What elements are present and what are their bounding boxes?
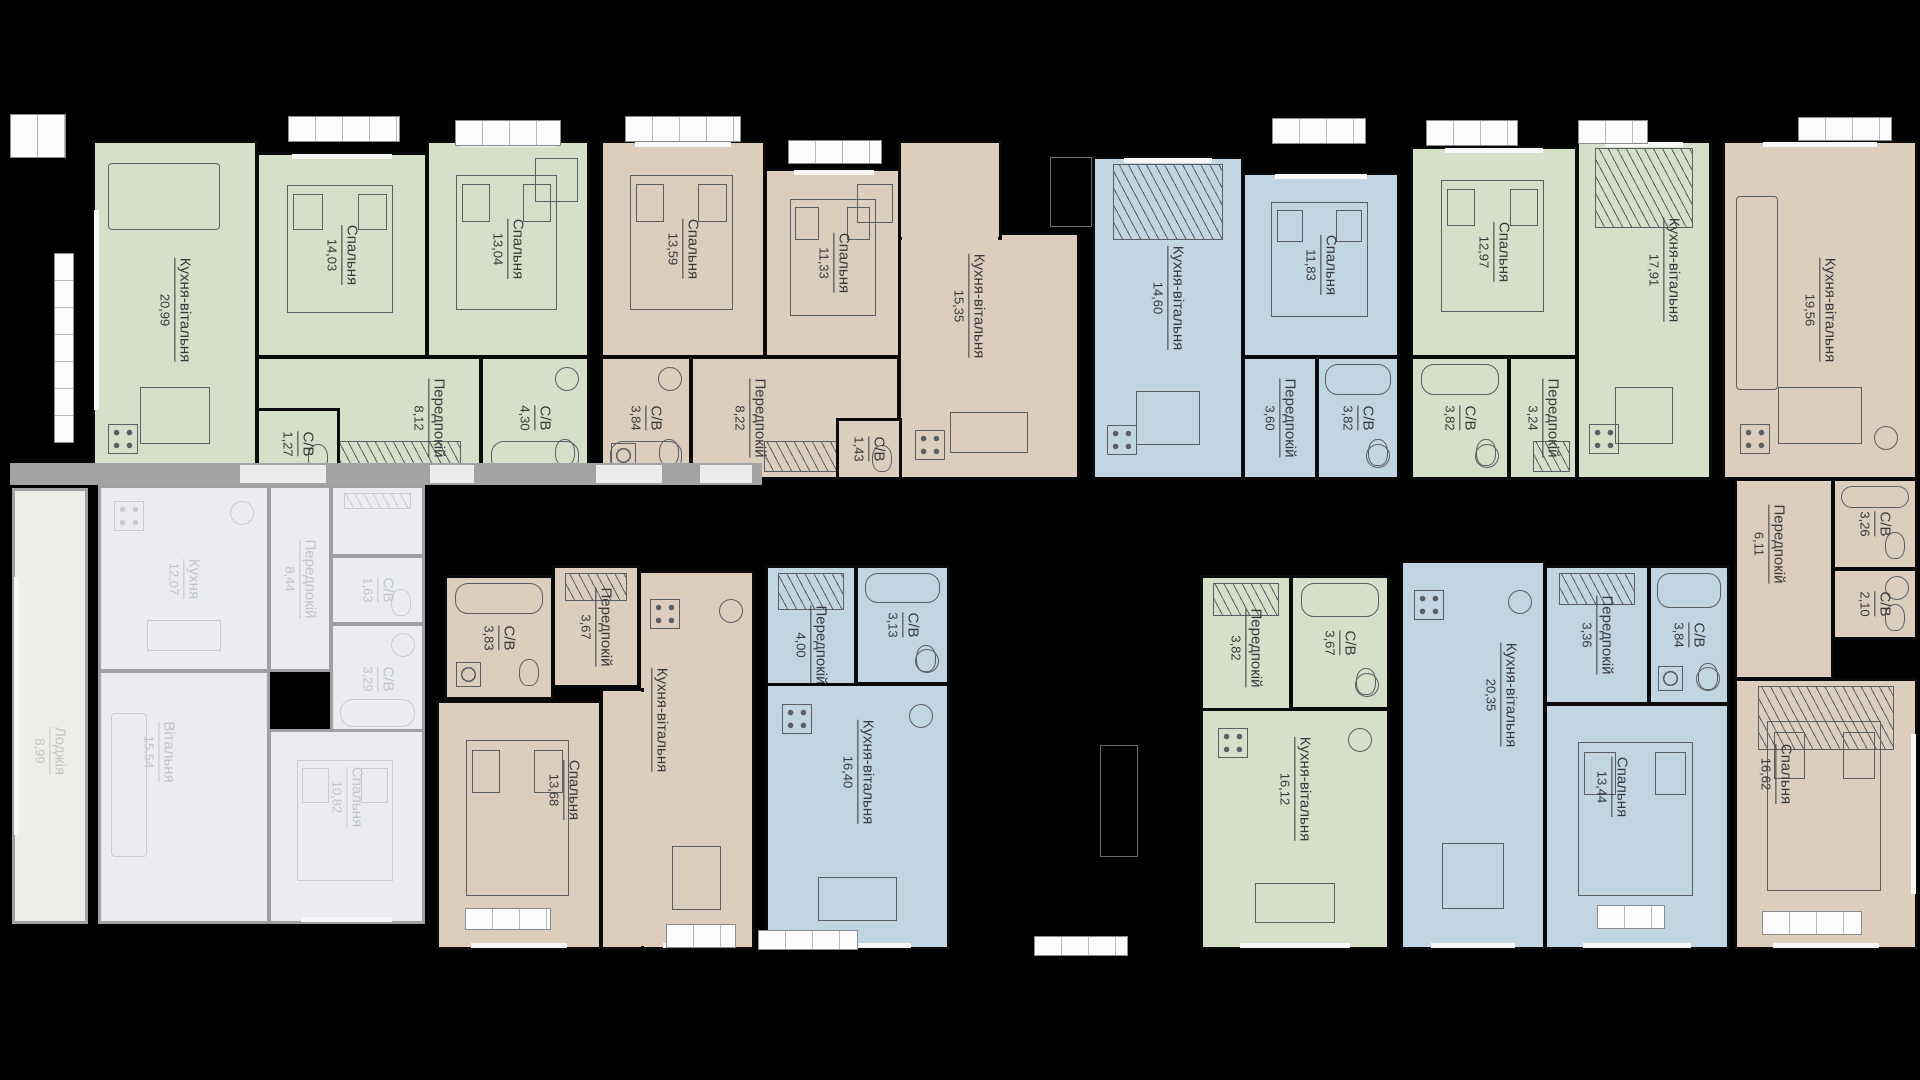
- room-label: С/В1,63: [360, 577, 395, 602]
- bed-symbol: [630, 175, 732, 311]
- sink-symbol: [909, 704, 933, 728]
- room-label: Передпокій8,22: [733, 379, 768, 458]
- apartment-top-4-bathroom[interactable]: С/В3,82: [1410, 356, 1510, 480]
- wc-symbol: [1885, 532, 1905, 559]
- room-name: Передпокій: [1280, 379, 1298, 458]
- room-area: 3,24: [1526, 405, 1541, 430]
- room-area: 3,67: [579, 614, 594, 639]
- window: [292, 154, 392, 159]
- wardrobe-symbol: [344, 493, 412, 509]
- sofa-symbol: [108, 163, 220, 230]
- room-name: Лоджія: [50, 727, 68, 775]
- bath-symbol: [1657, 573, 1721, 608]
- balcony-railing: [788, 140, 882, 164]
- room-label: С/В3,13: [885, 612, 920, 637]
- apartment-bottom-1-loggia: Лоджія8,99: [12, 488, 88, 924]
- room-area: 15,35: [952, 290, 967, 323]
- room-name: Кухня-вітальня: [1501, 643, 1519, 747]
- apartment-bottom-5-bathroom[interactable]: С/В3,84: [1648, 565, 1730, 705]
- wc-symbol: [1698, 663, 1718, 690]
- stove-symbol: [1218, 728, 1248, 758]
- room-name: С/В: [646, 405, 664, 430]
- window: [1124, 158, 1212, 163]
- stove-symbol: [114, 501, 144, 531]
- apartment-top-2-kitchen-living[interactable]: Кухня-вітальня15,35: [898, 232, 1080, 480]
- apartment-top-4-kitchen-living[interactable]: Кухня-вітальня17,91: [1576, 140, 1712, 480]
- apartment-top-3-bathroom[interactable]: С/В3,82: [1316, 356, 1400, 480]
- sink-symbol: [1348, 728, 1372, 752]
- table-symbol: [147, 620, 220, 651]
- wc-symbol: [1368, 439, 1388, 466]
- table-symbol: [672, 846, 721, 910]
- sink-symbol: [1874, 426, 1898, 450]
- bath-symbol: [1301, 583, 1380, 617]
- apartment-bottom-2-kitchen-living-patch: [633, 692, 647, 946]
- room-area: 3,82: [1341, 405, 1356, 430]
- ghost-fragment: [1050, 157, 1092, 227]
- washer-symbol: [1658, 666, 1683, 691]
- room-name: Передпокій: [1769, 505, 1787, 584]
- window: [1240, 943, 1350, 948]
- wardrobe-symbol: [1213, 583, 1278, 616]
- room-label: Кухня-вітальня16,12: [1278, 737, 1313, 841]
- balcony-railing: [288, 116, 400, 142]
- apartment-bottom-5-kitchen-living[interactable]: Кухня-вітальня20,35: [1400, 560, 1546, 950]
- apartment-top-5-hallway[interactable]: Передпокій6,11: [1734, 478, 1834, 680]
- apartment-bottom-1-living-room: Вітальня15,54: [98, 670, 270, 924]
- apartment-top-5-kitchen-living[interactable]: Кухня-вітальня19,56: [1722, 140, 1918, 480]
- room-name: Кухня-вітальня: [1295, 737, 1313, 841]
- room-label: Передпокій3,36: [1580, 596, 1615, 675]
- window: [471, 943, 567, 948]
- desk-symbol: [535, 158, 578, 203]
- balcony-railing: [10, 114, 66, 158]
- room-name: С/В: [535, 405, 553, 430]
- room-label: Кухня-вітальня20,99: [158, 258, 193, 362]
- wc-symbol: [1356, 668, 1376, 695]
- room-area: 3,84: [1672, 622, 1687, 647]
- room-area: 3,67: [1323, 630, 1338, 655]
- room-label: Кухня-вітальня15,35: [952, 254, 987, 358]
- apartment-top-2-bathroom-1[interactable]: С/В3,84: [600, 356, 692, 480]
- apartment-bottom-1-wardrobe-nook: [330, 485, 425, 557]
- wc-symbol: [391, 589, 411, 616]
- apartment-top-3-bedroom[interactable]: Спальня11,83: [1242, 172, 1400, 358]
- apartment-top-1-bedroom-1[interactable]: Спальня14,03: [256, 152, 428, 358]
- sofaV-symbol: [111, 713, 148, 857]
- room-area: 8,99: [33, 738, 48, 763]
- apartment-bottom-3-kitchen-living[interactable]: Кухня-вітальня16,40: [765, 683, 950, 950]
- bath-symbol: [865, 573, 940, 603]
- room-area: 3,82: [1229, 635, 1244, 660]
- room-label: Передпокій6,11: [1752, 505, 1787, 584]
- room-area: 3,84: [629, 405, 644, 430]
- bath-symbol: [1421, 364, 1500, 395]
- room-name: Кухня: [184, 558, 202, 598]
- room-area: 8,22: [733, 405, 748, 430]
- room-label: Кухня-вітальня16,40: [840, 719, 875, 823]
- wc-symbol: [872, 445, 892, 472]
- room-area: 4,00: [794, 632, 809, 657]
- sidewalk-tick: [596, 465, 662, 483]
- apartment-top-2-bathroom-2[interactable]: С/В1,43: [836, 418, 902, 480]
- wc-symbol: [519, 659, 539, 686]
- washer-symbol: [456, 662, 481, 687]
- apartment-bottom-1-kitchen: Кухня12,07: [98, 485, 270, 672]
- wc-symbol: [916, 645, 936, 672]
- apartment-top-4-bedroom[interactable]: Спальня12,97: [1410, 146, 1578, 358]
- balcony-railing: [758, 930, 858, 950]
- room-name: С/В: [1689, 622, 1707, 647]
- apartment-bottom-5-hallway[interactable]: Передпокій3,36: [1544, 565, 1650, 705]
- room-label: С/В3,67: [1323, 630, 1358, 655]
- room-label: Кухня-вітальня14,60: [1151, 246, 1186, 350]
- window: [1763, 142, 1877, 147]
- bath-symbol: [455, 583, 542, 614]
- room-area: 16,12: [1278, 773, 1293, 806]
- room-area: 1,27: [281, 431, 296, 456]
- room-label: С/В3,83: [482, 625, 517, 650]
- balcony-railing: [465, 908, 551, 930]
- stove-symbol: [1589, 424, 1619, 454]
- table-symbol: [140, 387, 210, 444]
- stove-symbol: [782, 704, 812, 734]
- window: [1583, 943, 1691, 948]
- apartment-top-2-kitchen-living-part-0[interactable]: [898, 140, 1002, 240]
- room-area: 16,40: [840, 755, 855, 788]
- room-area: 17,91: [1647, 254, 1662, 287]
- sink-symbol: [230, 501, 254, 525]
- table-symbol: [950, 412, 1027, 453]
- room-label: С/В4,30: [518, 405, 553, 430]
- room-area: 6,11: [1752, 532, 1767, 556]
- balcony-railing: [1272, 118, 1366, 144]
- room-name: Кухня-вітальня: [175, 258, 193, 362]
- window: [1911, 734, 1916, 894]
- bed-symbol: [1767, 721, 1881, 891]
- balcony-railing: [1426, 120, 1518, 146]
- room-area: 20,35: [1484, 679, 1499, 712]
- room-name: С/В: [1340, 630, 1358, 655]
- room-label: Передпокій3,82: [1229, 608, 1264, 687]
- balcony-railing: [1597, 905, 1665, 929]
- sidewalk-tick: [240, 465, 326, 483]
- apartment-bottom-4-bathroom[interactable]: С/В3,67: [1290, 575, 1390, 710]
- room-area: 3,29: [360, 666, 375, 691]
- stove-symbol: [915, 430, 945, 460]
- room-area: 12,07: [167, 562, 182, 595]
- bed-symbol: [1441, 180, 1545, 312]
- balcony-railing: [1798, 117, 1892, 141]
- apartment-top-3-hallway[interactable]: Передпокій3,60: [1242, 356, 1318, 480]
- balcony-railing: [625, 116, 741, 142]
- table-symbol: [818, 877, 897, 921]
- wardrobe-symbol: [1559, 573, 1635, 605]
- room-label: С/В3,82: [1443, 405, 1478, 430]
- room-label: Кухня-вітальня20,35: [1484, 643, 1519, 747]
- room-area: 1,63: [360, 577, 375, 602]
- apartment-top-1-bathroom-2[interactable]: С/В4,30: [480, 356, 590, 480]
- bath-symbol: [1325, 364, 1391, 395]
- wardrobe-symbol: [1595, 148, 1694, 228]
- window: [14, 577, 19, 835]
- bed-symbol: [1578, 742, 1693, 896]
- ghost-fragment: [1100, 745, 1138, 857]
- sofaV-symbol: [1736, 196, 1778, 390]
- room-label: С/В3,82: [1341, 405, 1376, 430]
- room-label: Передпокій3,60: [1263, 379, 1298, 458]
- room-area: 14,60: [1151, 282, 1166, 315]
- room-name: Кухня-вітальня: [1168, 246, 1186, 350]
- stove-symbol: [108, 424, 138, 454]
- room-area: 2,10: [1858, 591, 1873, 616]
- room-name: С/В: [902, 612, 920, 637]
- apartment-top-2-bedroom-2[interactable]: Спальня11,33: [764, 168, 904, 358]
- sidewalk-tick: [700, 465, 752, 483]
- room-area: 3,13: [885, 612, 900, 637]
- floor-plan: Кухня-вітальня20,99Спальня14,03Спальня13…: [0, 0, 1920, 1080]
- room-area: 3,60: [1263, 405, 1278, 430]
- room-area: 1,43: [852, 436, 867, 461]
- room-label: Передпокій8,44: [283, 539, 318, 618]
- room-label: Кухня12,07: [167, 558, 202, 598]
- room-area: 3,82: [1443, 405, 1458, 430]
- sink-symbol: [391, 633, 415, 657]
- room-name: С/В: [377, 666, 395, 691]
- apartment-top-2-kitchen-living-patch: [902, 230, 998, 244]
- apartment-bottom-1-hallway: Передпокій8,44: [268, 485, 332, 672]
- room-area: 3,26: [1858, 511, 1873, 536]
- wardrobe-symbol: [778, 573, 843, 610]
- wc-symbol: [1476, 439, 1496, 466]
- room-name: Кухня-вітальня: [1664, 218, 1682, 322]
- apartment-top-5-bedroom[interactable]: Спальня16,62: [1734, 678, 1918, 950]
- sink-symbol: [555, 367, 579, 391]
- apartment-bottom-1-bathroom-1: С/В1,63: [330, 555, 425, 625]
- room-area: 4,30: [518, 405, 533, 430]
- room-area: 19,56: [1803, 294, 1818, 327]
- table-symbol: [1778, 387, 1862, 444]
- wardrobe-symbol: [1533, 441, 1570, 472]
- apartment-top-1-bedroom-2[interactable]: Спальня13,04: [426, 140, 590, 358]
- bath-symbol: [1841, 486, 1908, 508]
- bed-symbol: [1271, 202, 1368, 317]
- balcony-railing: [666, 924, 736, 948]
- sink-symbol: [1508, 590, 1532, 614]
- balcony-railing: [1578, 120, 1648, 144]
- room-name: Кухня-вітальня: [1820, 258, 1838, 362]
- room-name: С/В: [499, 625, 517, 650]
- table-symbol: [1255, 883, 1336, 923]
- window: [94, 210, 99, 410]
- apartment-bottom-2-bathroom[interactable]: С/В3,83: [444, 575, 554, 700]
- apartment-bottom-1-bedroom: Спальня10,82: [268, 729, 425, 924]
- room-name: Передпокій: [1597, 596, 1615, 675]
- bed-symbol: [287, 185, 393, 313]
- window: [635, 142, 731, 147]
- apartment-top-1-kitchen-living[interactable]: Кухня-вітальня20,99: [92, 140, 258, 480]
- bath-symbol: [340, 699, 415, 727]
- sink-symbol: [719, 599, 743, 623]
- sink-symbol: [658, 367, 682, 391]
- window: [1773, 943, 1880, 948]
- room-area: 3,83: [482, 625, 497, 650]
- sidewalk-tick: [430, 465, 474, 483]
- sink-symbol: [1885, 576, 1909, 600]
- room-name: С/В: [1460, 405, 1478, 430]
- window: [1275, 174, 1366, 179]
- apartment-bottom-1-bathroom-2: С/В3,29: [330, 623, 425, 735]
- apartment-bottom-4-hallway[interactable]: Передпокій3,82: [1200, 575, 1292, 720]
- room-area: 20,99: [158, 294, 173, 327]
- window: [1445, 148, 1542, 153]
- room-label: Кухня-вітальня19,56: [1803, 258, 1838, 362]
- room-name: Передпокій: [1246, 608, 1264, 687]
- room-area: 8,12: [412, 405, 427, 430]
- table-symbol: [1442, 843, 1504, 908]
- window: [1431, 943, 1515, 948]
- bed-symbol: [297, 760, 394, 881]
- room-area: 8,44: [283, 566, 298, 591]
- room-label: Передпокій4,00: [794, 606, 829, 685]
- room-name: С/В: [1358, 405, 1376, 430]
- apartment-top-5-bathroom-2[interactable]: С/В2,10: [1832, 568, 1918, 640]
- wardrobe-symbol: [565, 573, 627, 601]
- room-name: Вітальня: [159, 721, 177, 782]
- window: [301, 917, 392, 922]
- balcony-railing: [1762, 911, 1862, 935]
- desk-symbol: [857, 184, 893, 223]
- apartment-bottom-4-kitchen-living[interactable]: Кухня-вітальня16,12: [1200, 708, 1390, 950]
- table-symbol: [1615, 387, 1672, 444]
- room-label: С/В3,29: [360, 666, 395, 691]
- balcony-railing: [54, 253, 74, 443]
- stove-symbol: [650, 599, 680, 629]
- stove-symbol: [1107, 425, 1137, 455]
- room-name: Кухня-вітальня: [969, 254, 987, 358]
- room-area: 3,36: [1580, 622, 1595, 647]
- room-label: С/В3,26: [1858, 511, 1893, 536]
- apartment-bottom-3-bathroom[interactable]: С/В3,13: [855, 565, 950, 685]
- bed-symbol: [466, 740, 568, 896]
- stove-symbol: [1414, 590, 1444, 620]
- apartment-top-4-hallway[interactable]: Передпокій3,24: [1508, 356, 1578, 480]
- room-label: С/В3,84: [1672, 622, 1707, 647]
- apartment-top-2-bedroom-1[interactable]: Спальня13,59: [600, 140, 766, 358]
- wardrobe-symbol: [1113, 164, 1224, 240]
- room-label: С/В3,84: [629, 405, 664, 430]
- balcony-railing: [455, 120, 561, 146]
- apartment-bottom-2-kitchen-living[interactable]: Кухня-вітальня19,78: [638, 570, 755, 950]
- balcony-railing: [1034, 936, 1128, 956]
- room-name: Кухня-вітальня: [857, 719, 875, 823]
- room-name: Передпокій: [300, 539, 318, 618]
- apartment-top-5-bathroom-1[interactable]: С/В3,26: [1832, 478, 1918, 570]
- apartment-bottom-2-hallway[interactable]: Передпокій3,67: [552, 565, 640, 688]
- room-label: Кухня-вітальня17,91: [1647, 218, 1682, 322]
- stove-symbol: [1740, 424, 1770, 454]
- table-symbol: [1136, 391, 1200, 445]
- room-name: Кухня-вітальня: [651, 668, 669, 772]
- apartment-top-3-kitchen-living[interactable]: Кухня-вітальня14,60: [1092, 156, 1244, 480]
- window: [794, 170, 874, 175]
- wc-symbol: [1885, 604, 1905, 631]
- room-label: Лоджія8,99: [33, 727, 68, 775]
- room-name: Передпокій: [811, 606, 829, 685]
